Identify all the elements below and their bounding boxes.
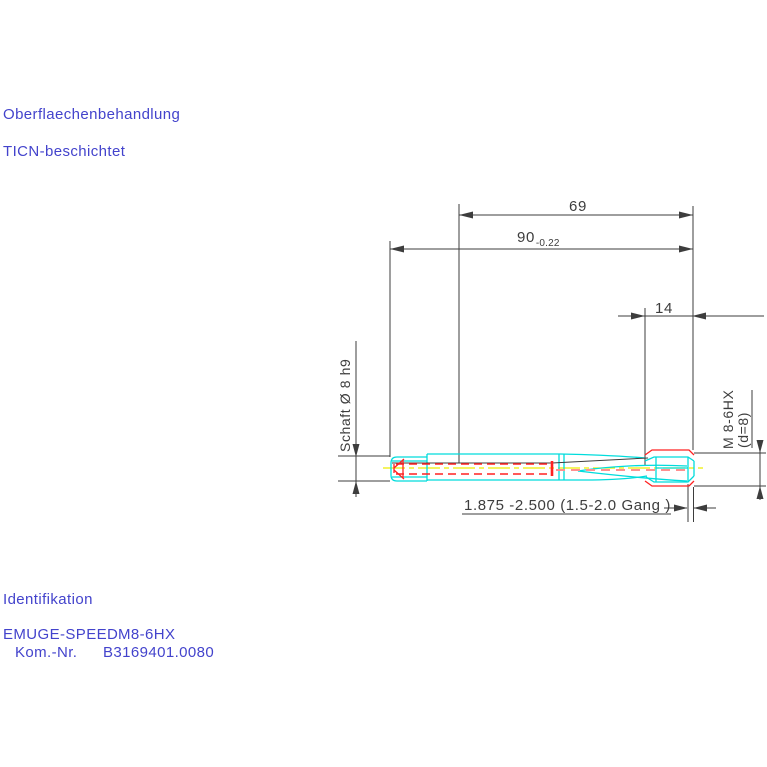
dim-90-text: 90-0.22 [517, 230, 559, 245]
chamfer-note-text: 1.875 -2.500 (1.5-2.0 Gang ) [464, 498, 671, 513]
tool-edge-dark [392, 458, 648, 463]
dimension-shank-diameter [353, 341, 360, 497]
identification-title: Identifikation [3, 592, 93, 607]
shank-diameter-label: Schaft Ø 8 h9 [338, 359, 352, 452]
dimension-14 [618, 313, 764, 320]
product-size: M8-6HX [118, 627, 175, 642]
kom-label: Kom.-Nr. [15, 645, 77, 660]
dim-90-tolerance: -0.22 [536, 238, 560, 249]
dim-14-text: 14 [650, 301, 678, 316]
kom-number: B3169401.0080 [103, 645, 214, 660]
dimension-thread-diameter [752, 390, 764, 500]
product-name: EMUGE-SPEED [3, 627, 118, 642]
dim-90-value: 90 [517, 229, 535, 246]
thread-core-label: (d=8) [736, 412, 750, 448]
thread-size-label: M 8-6HX [721, 390, 735, 449]
technical-drawing-canvas: Oberflaechenbehandlung TICN-beschichtet … [0, 0, 767, 767]
dim-69-text: 69 [563, 199, 593, 214]
surface-treatment-value: TICN-beschichtet [3, 144, 125, 159]
surface-treatment-title: Oberflaechenbehandlung [3, 107, 180, 122]
